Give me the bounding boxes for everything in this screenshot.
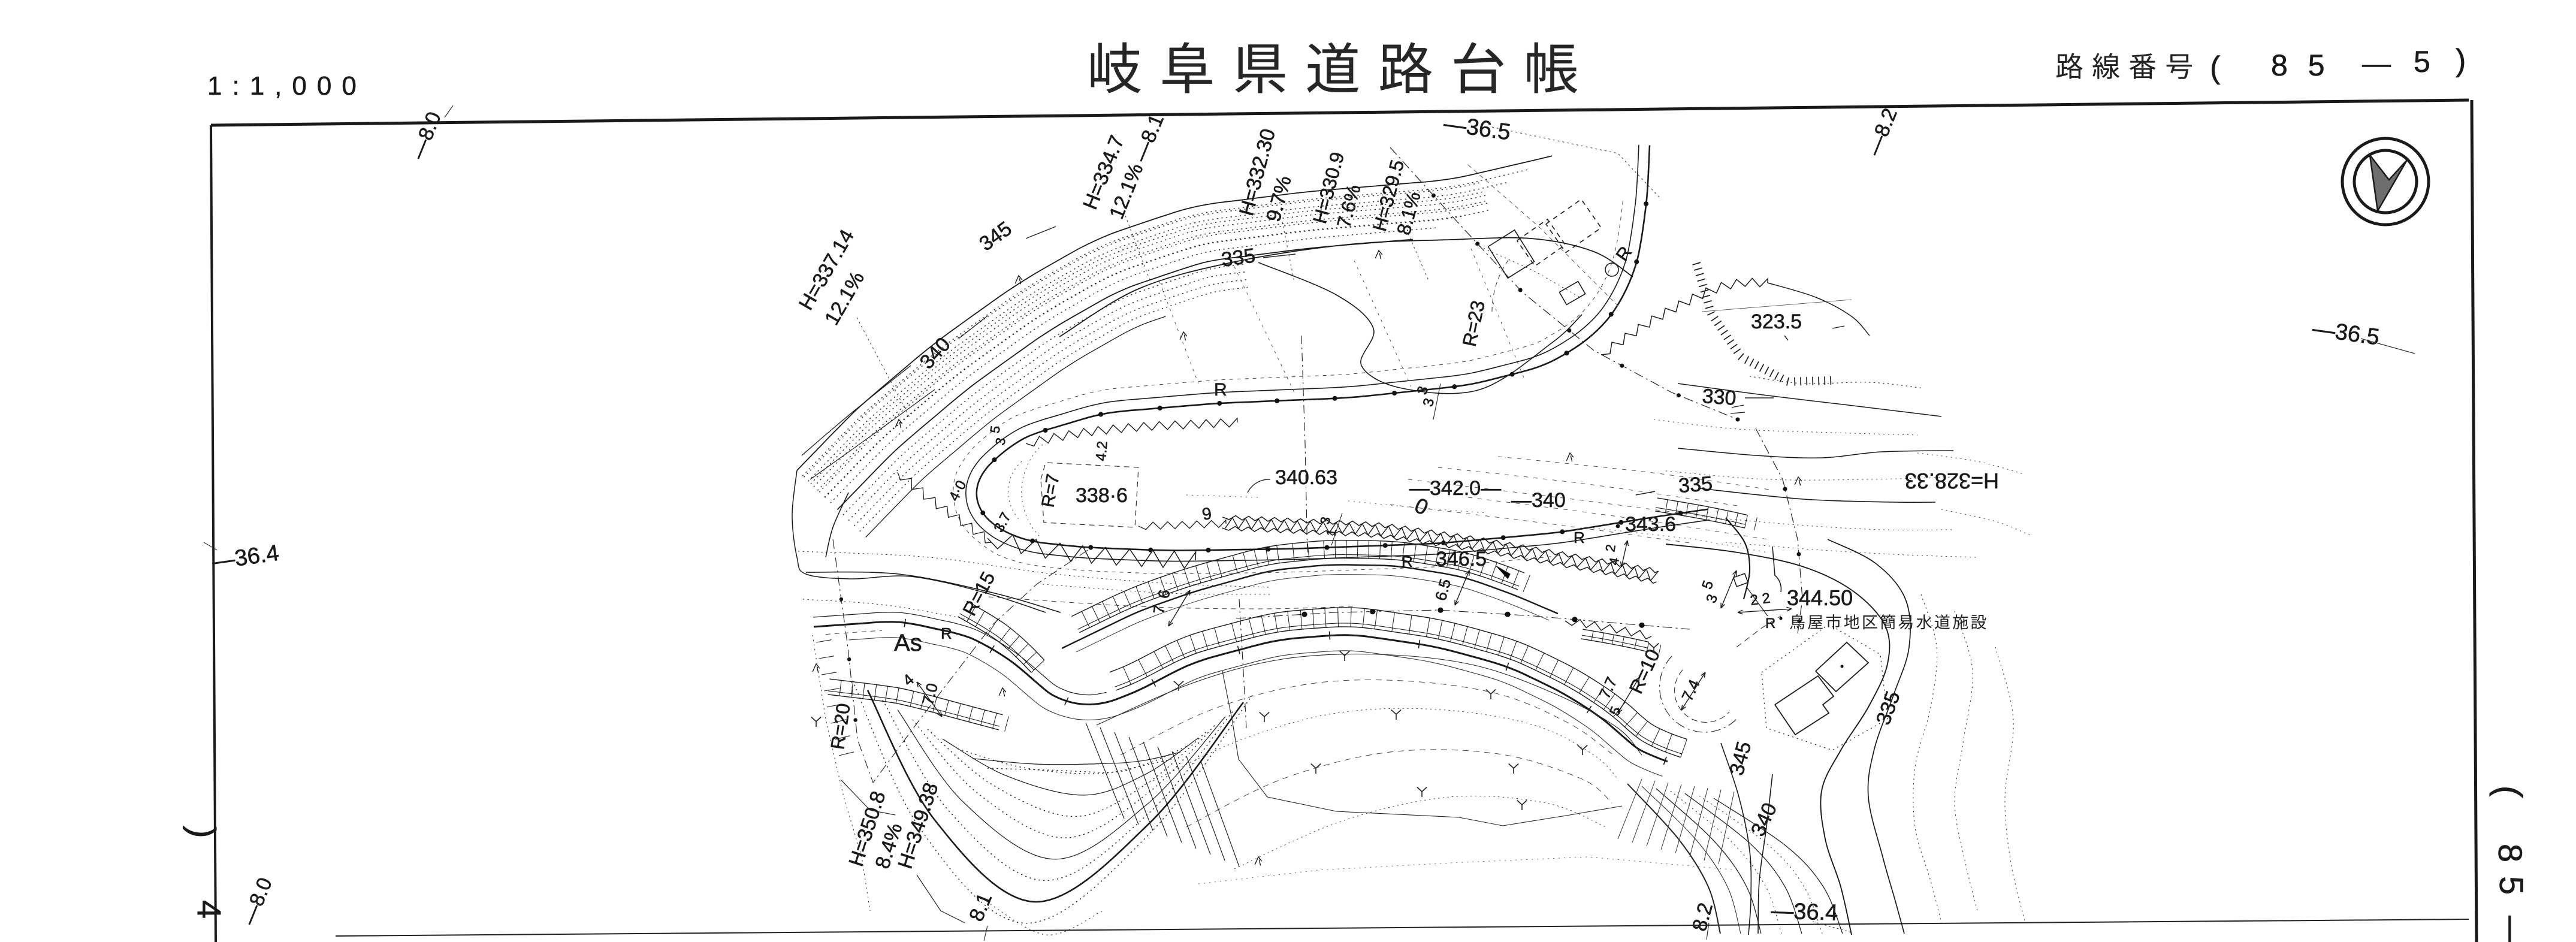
svg-text:346.5: 346.5 <box>1436 548 1487 570</box>
svg-text:338·6: 338·6 <box>1076 484 1128 507</box>
svg-text:R: R <box>941 624 952 642</box>
svg-text:5: 5 <box>2493 876 2530 895</box>
svg-text:8 5: 8 5 <box>2271 49 2331 82</box>
svg-text:335: 335 <box>1678 472 1713 497</box>
svg-text:340.63: 340.63 <box>1275 466 1337 489</box>
svg-text:330: 330 <box>1701 385 1737 410</box>
svg-text:As: As <box>894 630 922 656</box>
svg-text:—: — <box>2362 48 2391 80</box>
svg-text:1:1,000: 1:1,000 <box>207 71 367 101</box>
svg-text:4.2: 4.2 <box>1093 440 1111 462</box>
svg-text:4: 4 <box>191 900 228 919</box>
svg-text:8: 8 <box>2492 844 2529 862</box>
svg-text:(: ( <box>2489 784 2530 798</box>
svg-text:(: ( <box>2210 50 2221 85</box>
svg-text:R: R <box>1574 529 1585 547</box>
svg-text:): ) <box>2456 43 2466 78</box>
svg-text:343.6: 343.6 <box>1625 513 1676 536</box>
svg-text:—: — <box>2494 916 2532 942</box>
svg-text:R: R <box>1214 380 1227 400</box>
svg-text:5: 5 <box>2414 45 2430 78</box>
svg-text:R: R <box>1765 615 1775 632</box>
svg-text:344.50: 344.50 <box>1787 585 1853 610</box>
svg-text:—36.4: —36.4 <box>1771 898 1838 926</box>
svg-text:): ) <box>182 825 223 839</box>
svg-text:323.5: 323.5 <box>1751 310 1802 333</box>
svg-text:335: 335 <box>1220 244 1257 271</box>
svg-text:H=328.33: H=328.33 <box>1905 469 1999 493</box>
svg-text:—340: —340 <box>1511 489 1566 512</box>
